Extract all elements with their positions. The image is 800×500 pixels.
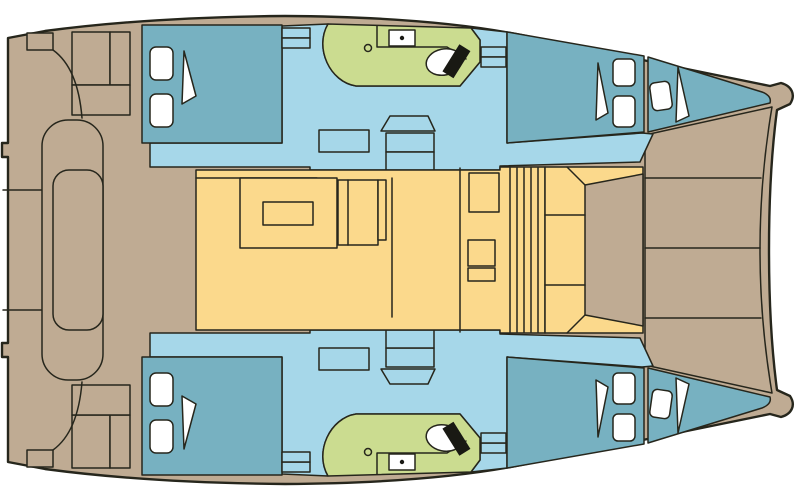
galley-appliance (468, 268, 495, 281)
forward-lounge-pad (585, 174, 643, 326)
catamaran-floorplan (0, 0, 800, 500)
galley-island (338, 180, 378, 245)
companionway-block (386, 133, 434, 152)
berth-pillow (649, 81, 673, 112)
galley-appliance (468, 240, 495, 266)
berth-pillow (150, 94, 173, 127)
salon (196, 167, 545, 333)
hull-steps (481, 57, 506, 67)
transom-step (27, 33, 53, 50)
foredeck-panels (645, 107, 772, 393)
berth-pillow (613, 96, 635, 127)
floorplan-canvas (0, 0, 800, 500)
steps-hatch (381, 116, 435, 131)
forward-cockpit (545, 167, 643, 333)
hull-steps (481, 47, 506, 57)
cockpit-table (53, 170, 103, 330)
companionway-block (386, 152, 434, 170)
companionway-block (319, 130, 369, 152)
cabin-steps (282, 28, 310, 38)
berth-pillow (150, 47, 173, 80)
transom-step (110, 32, 130, 85)
aft-cockpit (42, 120, 103, 380)
galley-island-end (378, 180, 386, 240)
shower-drain (365, 45, 372, 52)
cabin-steps (282, 38, 310, 48)
transom-step (72, 32, 110, 85)
dining-table (263, 202, 313, 225)
foredeck-surface (645, 107, 772, 393)
faucet-dot (400, 36, 404, 40)
galley-sink-unit (469, 173, 499, 212)
berth-pillow (613, 59, 635, 86)
